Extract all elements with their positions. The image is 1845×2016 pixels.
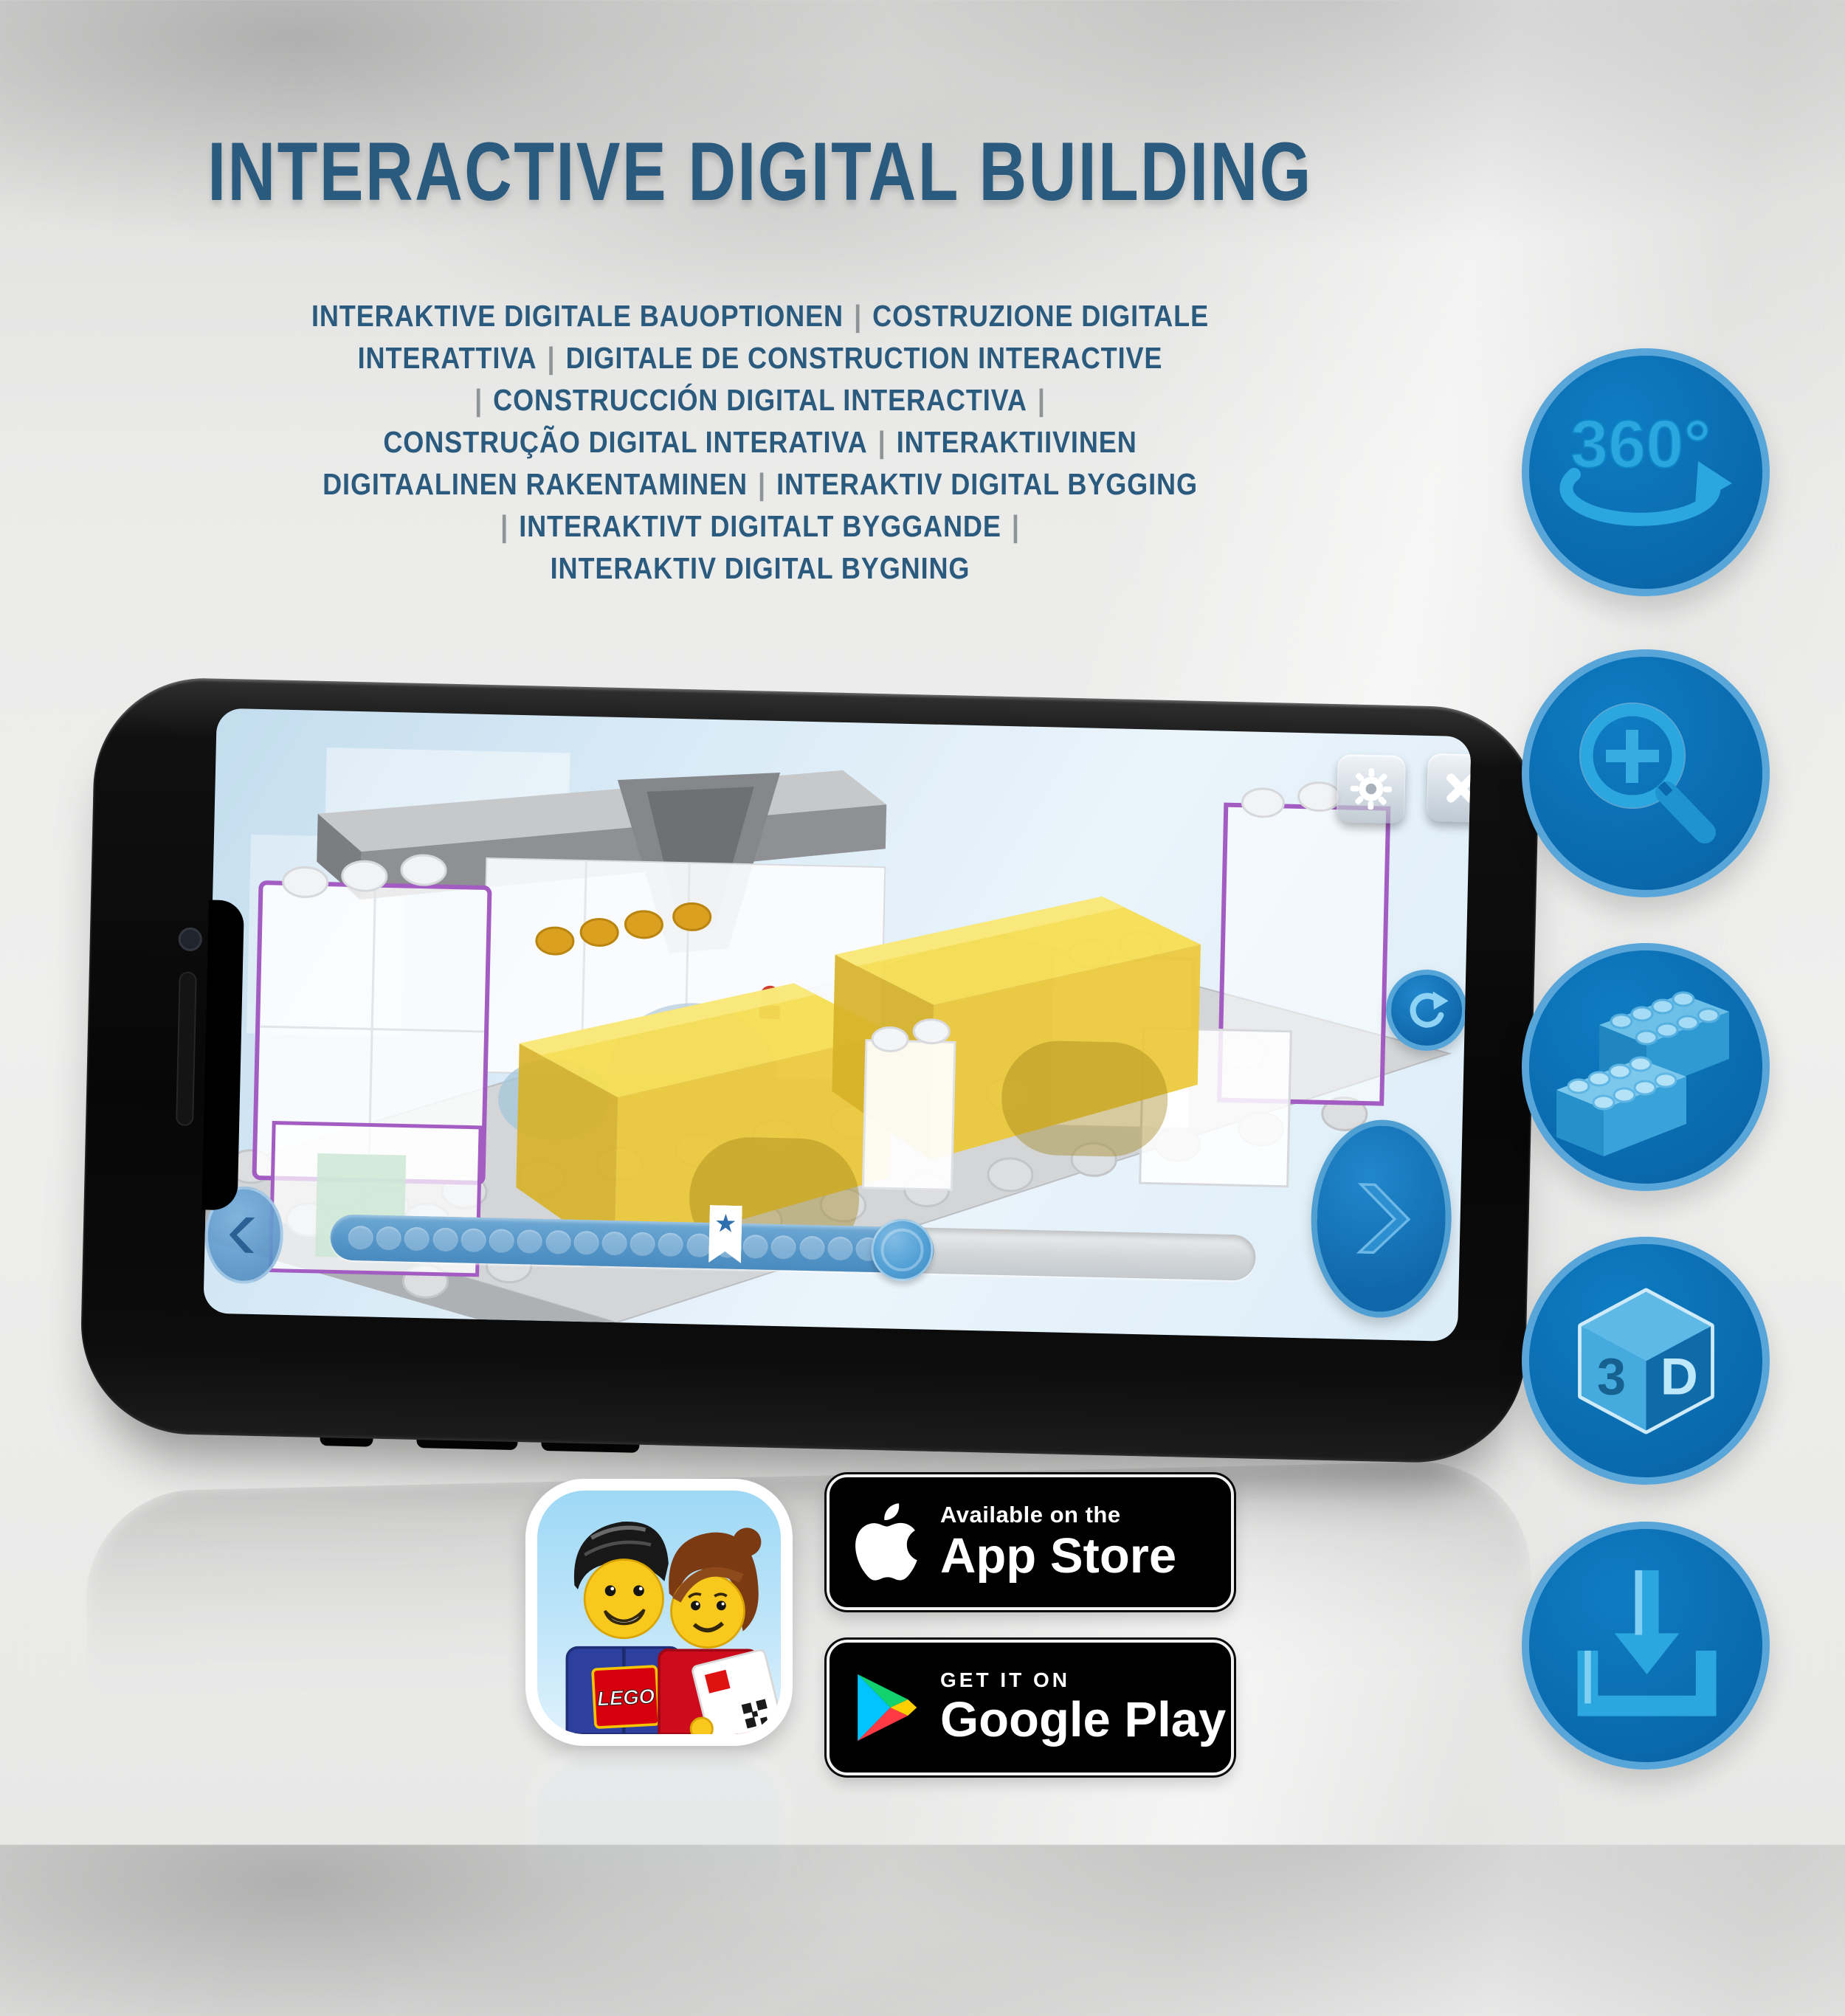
settings-button[interactable] [1337,754,1406,824]
chevron-left-icon [227,1214,261,1256]
phone: ★ [79,676,1541,1465]
cube-d-label: D [1660,1347,1697,1405]
progress-dot [601,1232,627,1256]
feature-360-rotation-icon: 360° [1522,348,1770,596]
lego-logo-text: LEGO [596,1685,655,1711]
phone-notch [202,900,245,1210]
progress-dot [630,1232,655,1257]
progress-dot [404,1227,430,1252]
feature-zoom-icon [1522,649,1770,897]
google-play-tagline: GET IT ON [940,1668,1226,1692]
progress-dot [489,1229,514,1253]
app-store-badge[interactable]: Available on the App Store [827,1474,1234,1610]
lego-app-artwork: LEGO [525,1479,793,1746]
progress-dot [742,1235,768,1259]
subtitle-line: INTERAKTIVE DIGITALE BAUOPTIONEN|COSTRUZ… [97,295,1422,337]
google-play-badge[interactable]: GET IT ON Google Play [827,1640,1234,1775]
gear-icon [1349,767,1393,811]
subtitle-line: |INTERAKTIVT DIGITALT BYGGANDE| [97,505,1422,548]
download-icon [1559,1559,1733,1733]
lego-brick-icon [1553,975,1738,1159]
progress-dot [686,1233,712,1257]
lego-app-icon[interactable]: LEGO [525,1479,793,1746]
app-store-tagline: Available on the [940,1502,1176,1528]
google-play-icon [830,1670,940,1745]
progress-dot [348,1226,373,1250]
phone-reflection [83,1460,1535,1817]
progress-dot [517,1229,543,1254]
progress-dot [432,1227,458,1252]
progress-dot [658,1232,684,1257]
progress-dot [545,1230,571,1254]
phone-speaker-slot [176,972,197,1126]
progress-dot [827,1237,853,1261]
close-icon [1441,767,1471,808]
lego-minifigures-art: LEGO [537,1491,781,1734]
progress-dot [573,1231,599,1255]
progress-dot [770,1235,796,1260]
progress-dot [376,1226,402,1251]
subtitle: INTERAKTIVE DIGITALE BAUOPTIONEN|COSTRUZ… [97,295,1422,590]
chevron-right-icon [1345,1170,1418,1268]
360-degree-icon: 360° [1553,380,1738,565]
google-play-name: Google Play [940,1694,1226,1747]
lego-app-icon-reflection [525,1749,793,2016]
feature-download-icon [1522,1522,1770,1770]
app-screen: ★ [203,708,1471,1342]
subtitle-line: DIGITAALINEN RAKENTAMINEN|INTERAKTIV DIG… [97,463,1422,505]
feature-brick-icon [1522,943,1770,1191]
cube-3-label: 3 [1596,1347,1625,1405]
rotate-icon [1403,987,1449,1033]
subtitle-line: CONSTRUÇÃO DIGITAL INTERATIVA|INTERAKTII… [97,421,1422,463]
subtitle-line: INTERAKTIV DIGITAL BYGNING [97,548,1422,590]
feature-3d-view-icon: 3 D [1522,1237,1770,1485]
subtitle-line: INTERATTIVA|DIGITALE DE CONSTRUCTION INT… [97,337,1422,379]
app-store-name: App Store [940,1530,1176,1583]
close-button[interactable] [1427,753,1472,823]
apple-icon [830,1502,940,1583]
progress-dot [799,1236,825,1260]
subtitle-line: |CONSTRUCCIÓN DIGITAL INTERACTIVA| [97,379,1422,421]
360-label: 360° [1570,407,1711,482]
progress-dot [461,1228,486,1252]
zoom-in-icon [1557,685,1734,862]
page-title: INTERACTIVE DIGITAL BUILDING [164,124,1356,219]
3d-cube-icon: 3 D [1559,1274,1733,1448]
